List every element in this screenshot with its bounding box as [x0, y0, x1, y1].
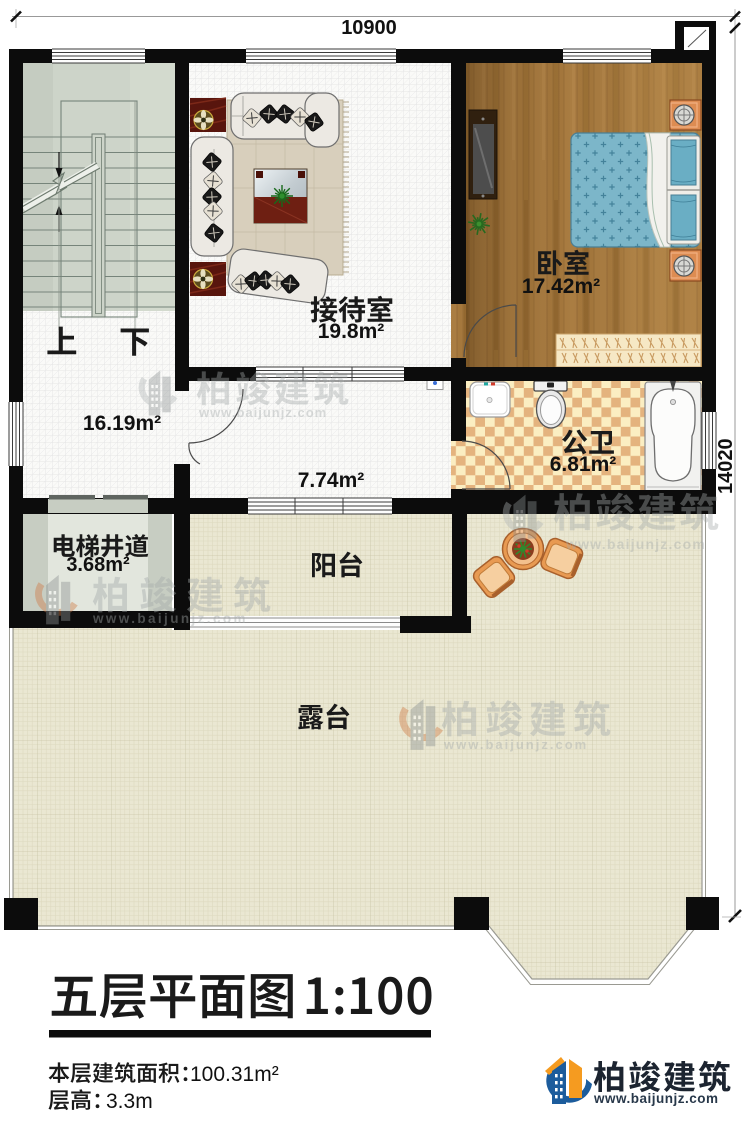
svg-text:100.31m²: 100.31m² — [190, 1063, 279, 1086]
svg-text:6.81m²: 6.81m² — [550, 453, 617, 476]
svg-text:www.baijunjz.com: www.baijunjz.com — [198, 405, 327, 420]
svg-text:17.42m²: 17.42m² — [522, 275, 600, 298]
svg-text:www.baijunjz.com: www.baijunjz.com — [443, 737, 588, 752]
svg-text:7.74m²: 7.74m² — [298, 469, 365, 492]
svg-text:www.baijunjz.com: www.baijunjz.com — [565, 536, 706, 552]
svg-text:19.8m²: 19.8m² — [318, 320, 385, 343]
svg-text:16.19m²: 16.19m² — [83, 412, 161, 435]
svg-text:10900: 10900 — [341, 17, 397, 39]
svg-text:3.3m: 3.3m — [106, 1090, 153, 1113]
svg-text:www.baijunjz.com: www.baijunjz.com — [92, 611, 248, 626]
svg-text:14020: 14020 — [715, 438, 737, 494]
svg-text:www.baijunjz.com: www.baijunjz.com — [593, 1091, 719, 1106]
svg-text:3.68m²: 3.68m² — [66, 554, 130, 576]
